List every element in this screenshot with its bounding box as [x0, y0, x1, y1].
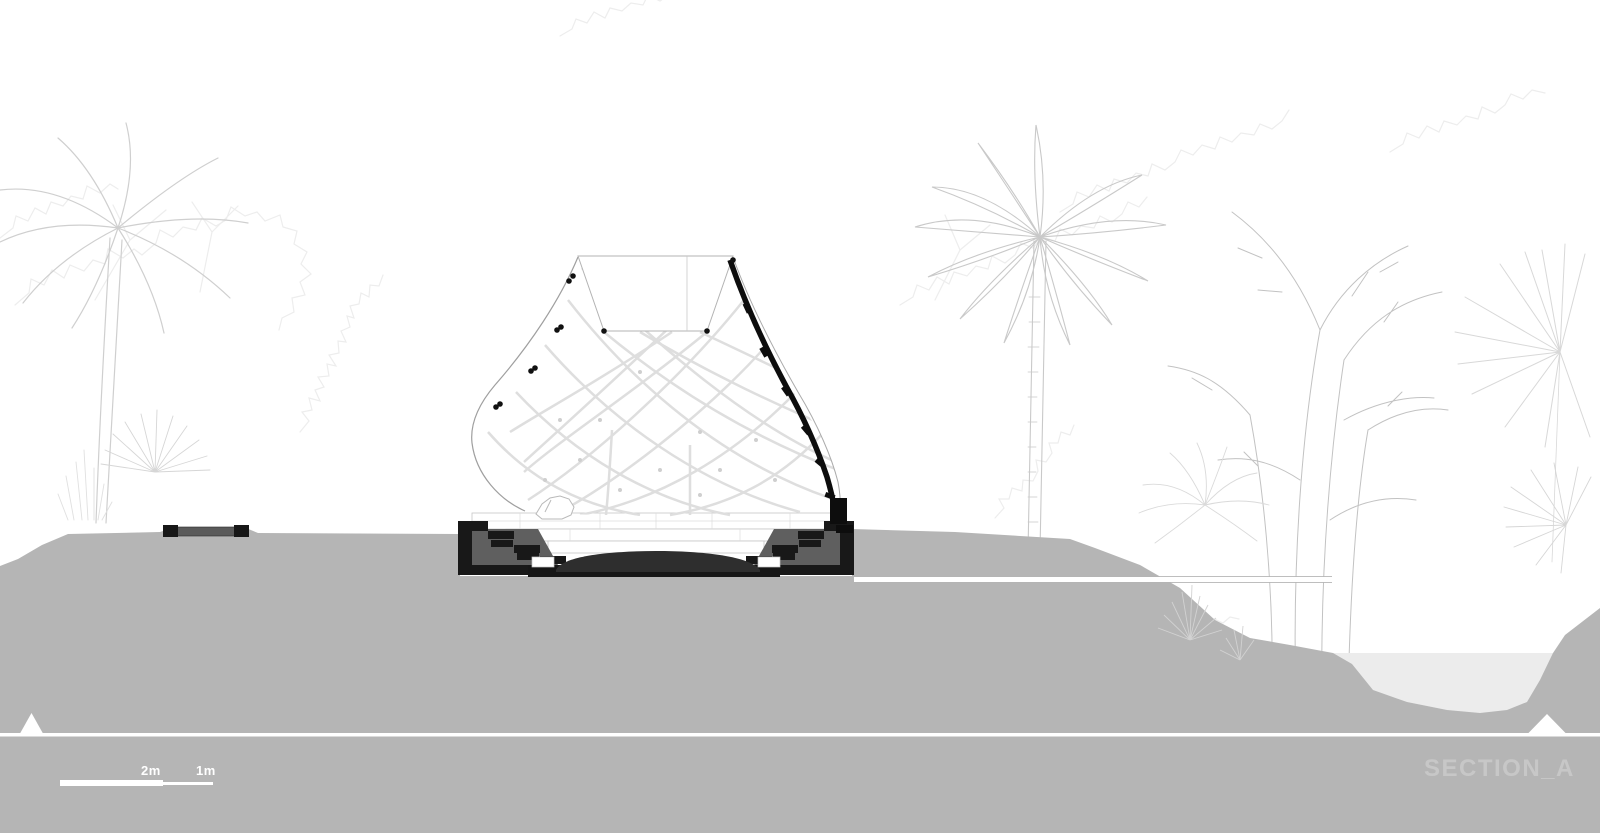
shrub-left-edge	[58, 450, 112, 520]
bench-end-right	[234, 525, 249, 537]
scale-label-1m: 1m	[196, 763, 216, 778]
walkway	[854, 577, 1332, 583]
gridshell-pavilion	[472, 256, 853, 533]
section-ground-line	[0, 733, 1600, 737]
scale-bar-major	[60, 780, 163, 786]
scale-label-2m: 2m	[141, 763, 161, 778]
bench	[163, 525, 249, 537]
cut-band-footing	[830, 498, 847, 524]
bench-end-left	[163, 525, 178, 537]
sunken-plaza	[458, 513, 854, 577]
cut-band-footing-plate	[836, 525, 853, 533]
plaza-lens-dish	[556, 551, 760, 572]
palm-tree-left	[0, 123, 248, 523]
fan-palm-right	[1455, 244, 1590, 562]
palm-tree-right	[915, 125, 1166, 552]
fan-cluster-corner	[1504, 463, 1591, 573]
floor-sculpture	[536, 496, 574, 519]
section-a-drawing-svg	[0, 0, 1600, 833]
skylight-box	[578, 256, 733, 331]
section-title: SECTION_A	[1424, 755, 1575, 783]
scale-bar-minor	[163, 782, 213, 785]
grass-clump-left	[101, 410, 210, 472]
lattice-nodes	[543, 370, 777, 497]
section-drawing: 2m 1m SECTION_A	[0, 0, 1600, 833]
plaza-floor-middle	[506, 529, 806, 541]
